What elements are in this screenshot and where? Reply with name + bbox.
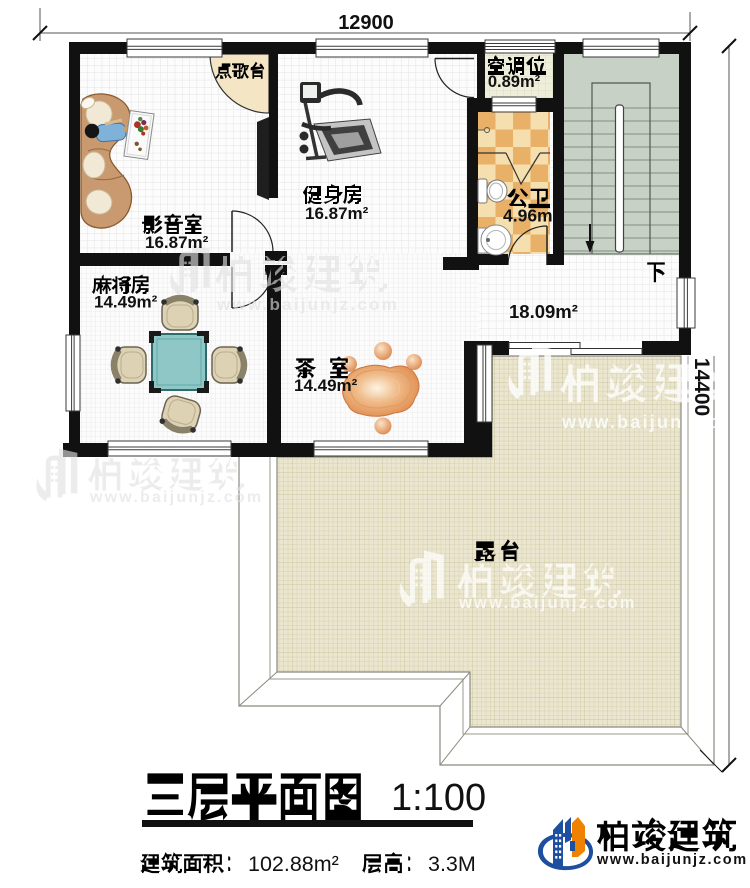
svg-text:1:100: 1:100	[391, 777, 486, 819]
svg-text:0.89m²: 0.89m²	[488, 73, 541, 91]
svg-text:16.87m²: 16.87m²	[305, 204, 369, 223]
svg-text:www.baijunjz.com: www.baijunjz.com	[561, 412, 750, 432]
svg-text:www.baijunjz.com: www.baijunjz.com	[596, 852, 748, 868]
svg-text:18.09m²: 18.09m²	[509, 301, 578, 322]
svg-text:www.baijunjz.com: www.baijunjz.com	[458, 594, 637, 612]
svg-text:www.baijunjz.com: www.baijunjz.com	[89, 489, 263, 506]
svg-text:4.96m²: 4.96m²	[503, 206, 559, 226]
svg-text:16.87m²: 16.87m²	[145, 233, 209, 252]
svg-text:14.49m²: 14.49m²	[94, 293, 158, 312]
svg-text:14400: 14400	[690, 358, 713, 416]
svg-text:www.baijunjz.com: www.baijunjz.com	[216, 295, 399, 314]
svg-text:14.49m²: 14.49m²	[294, 376, 358, 395]
svg-text:12900: 12900	[338, 12, 394, 34]
svg-text:3.3M: 3.3M	[428, 852, 476, 876]
svg-text:102.88m²: 102.88m²	[248, 852, 339, 876]
